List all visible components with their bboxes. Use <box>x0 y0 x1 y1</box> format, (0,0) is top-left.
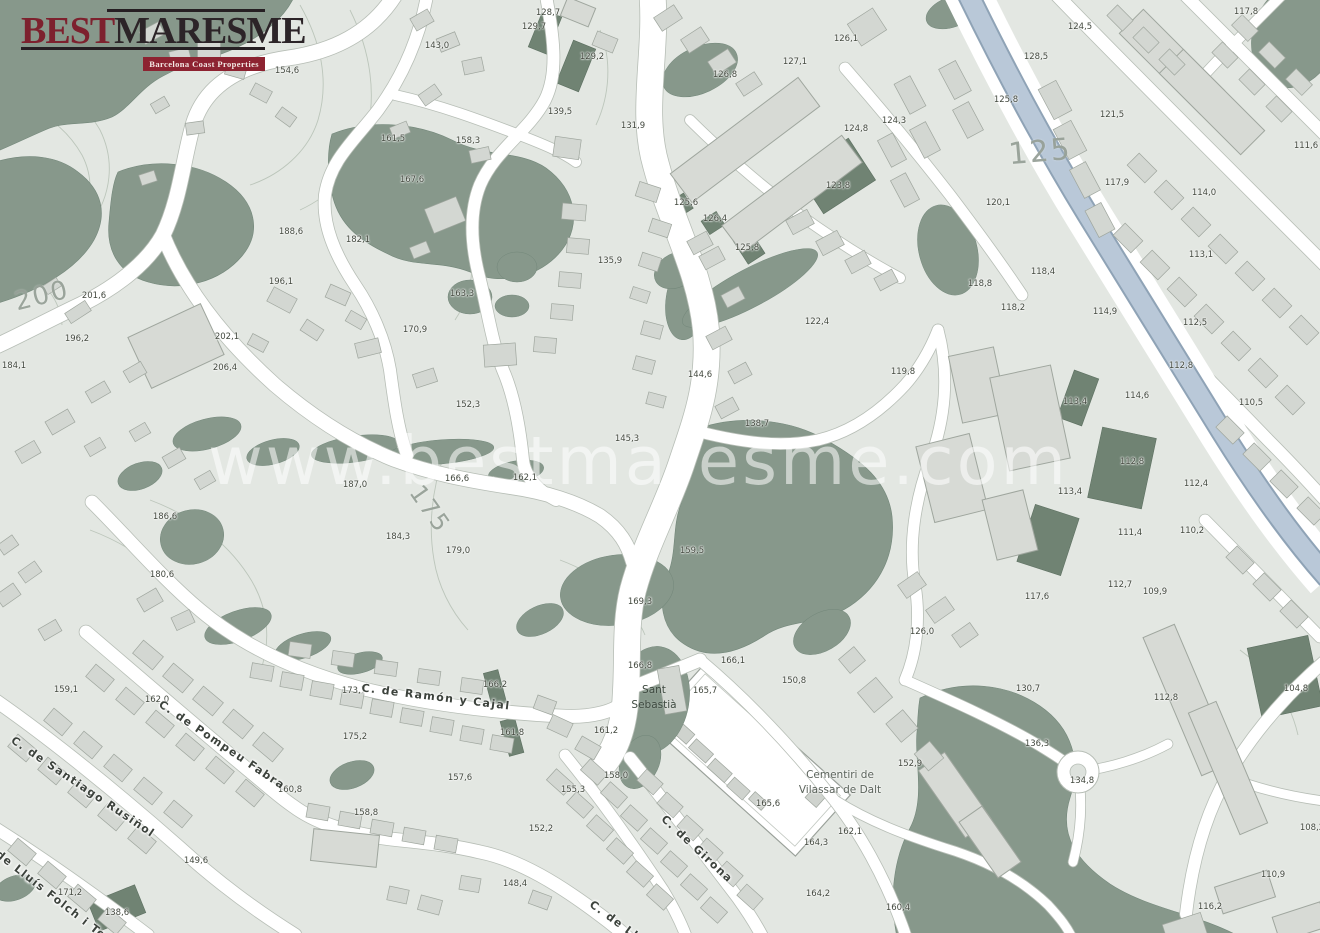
logo-maresme: MARESME <box>114 10 305 52</box>
building <box>374 660 398 677</box>
building <box>185 121 204 135</box>
building <box>561 203 586 221</box>
green-area <box>495 295 529 317</box>
building <box>459 875 481 892</box>
brand-logo: BESTMARESME Barcelona Coast Properties <box>21 9 265 71</box>
building <box>558 272 581 289</box>
building <box>566 238 589 255</box>
logo-tagline-badge: Barcelona Coast Properties <box>143 57 265 71</box>
building <box>483 343 516 367</box>
building <box>460 678 484 695</box>
building <box>331 651 355 668</box>
building <box>288 642 312 659</box>
building <box>533 337 556 354</box>
building <box>417 669 441 686</box>
map-canvas[interactable] <box>0 0 1320 933</box>
building <box>311 829 380 868</box>
roundabout <box>1057 751 1099 793</box>
green-area <box>497 252 537 282</box>
logo-best: BEST <box>21 10 114 52</box>
logo-wordmark: BESTMARESME <box>21 10 265 52</box>
map-page: BESTMARESME Barcelona Coast Properties w… <box>0 0 1320 933</box>
building <box>550 304 573 321</box>
building <box>553 136 582 159</box>
